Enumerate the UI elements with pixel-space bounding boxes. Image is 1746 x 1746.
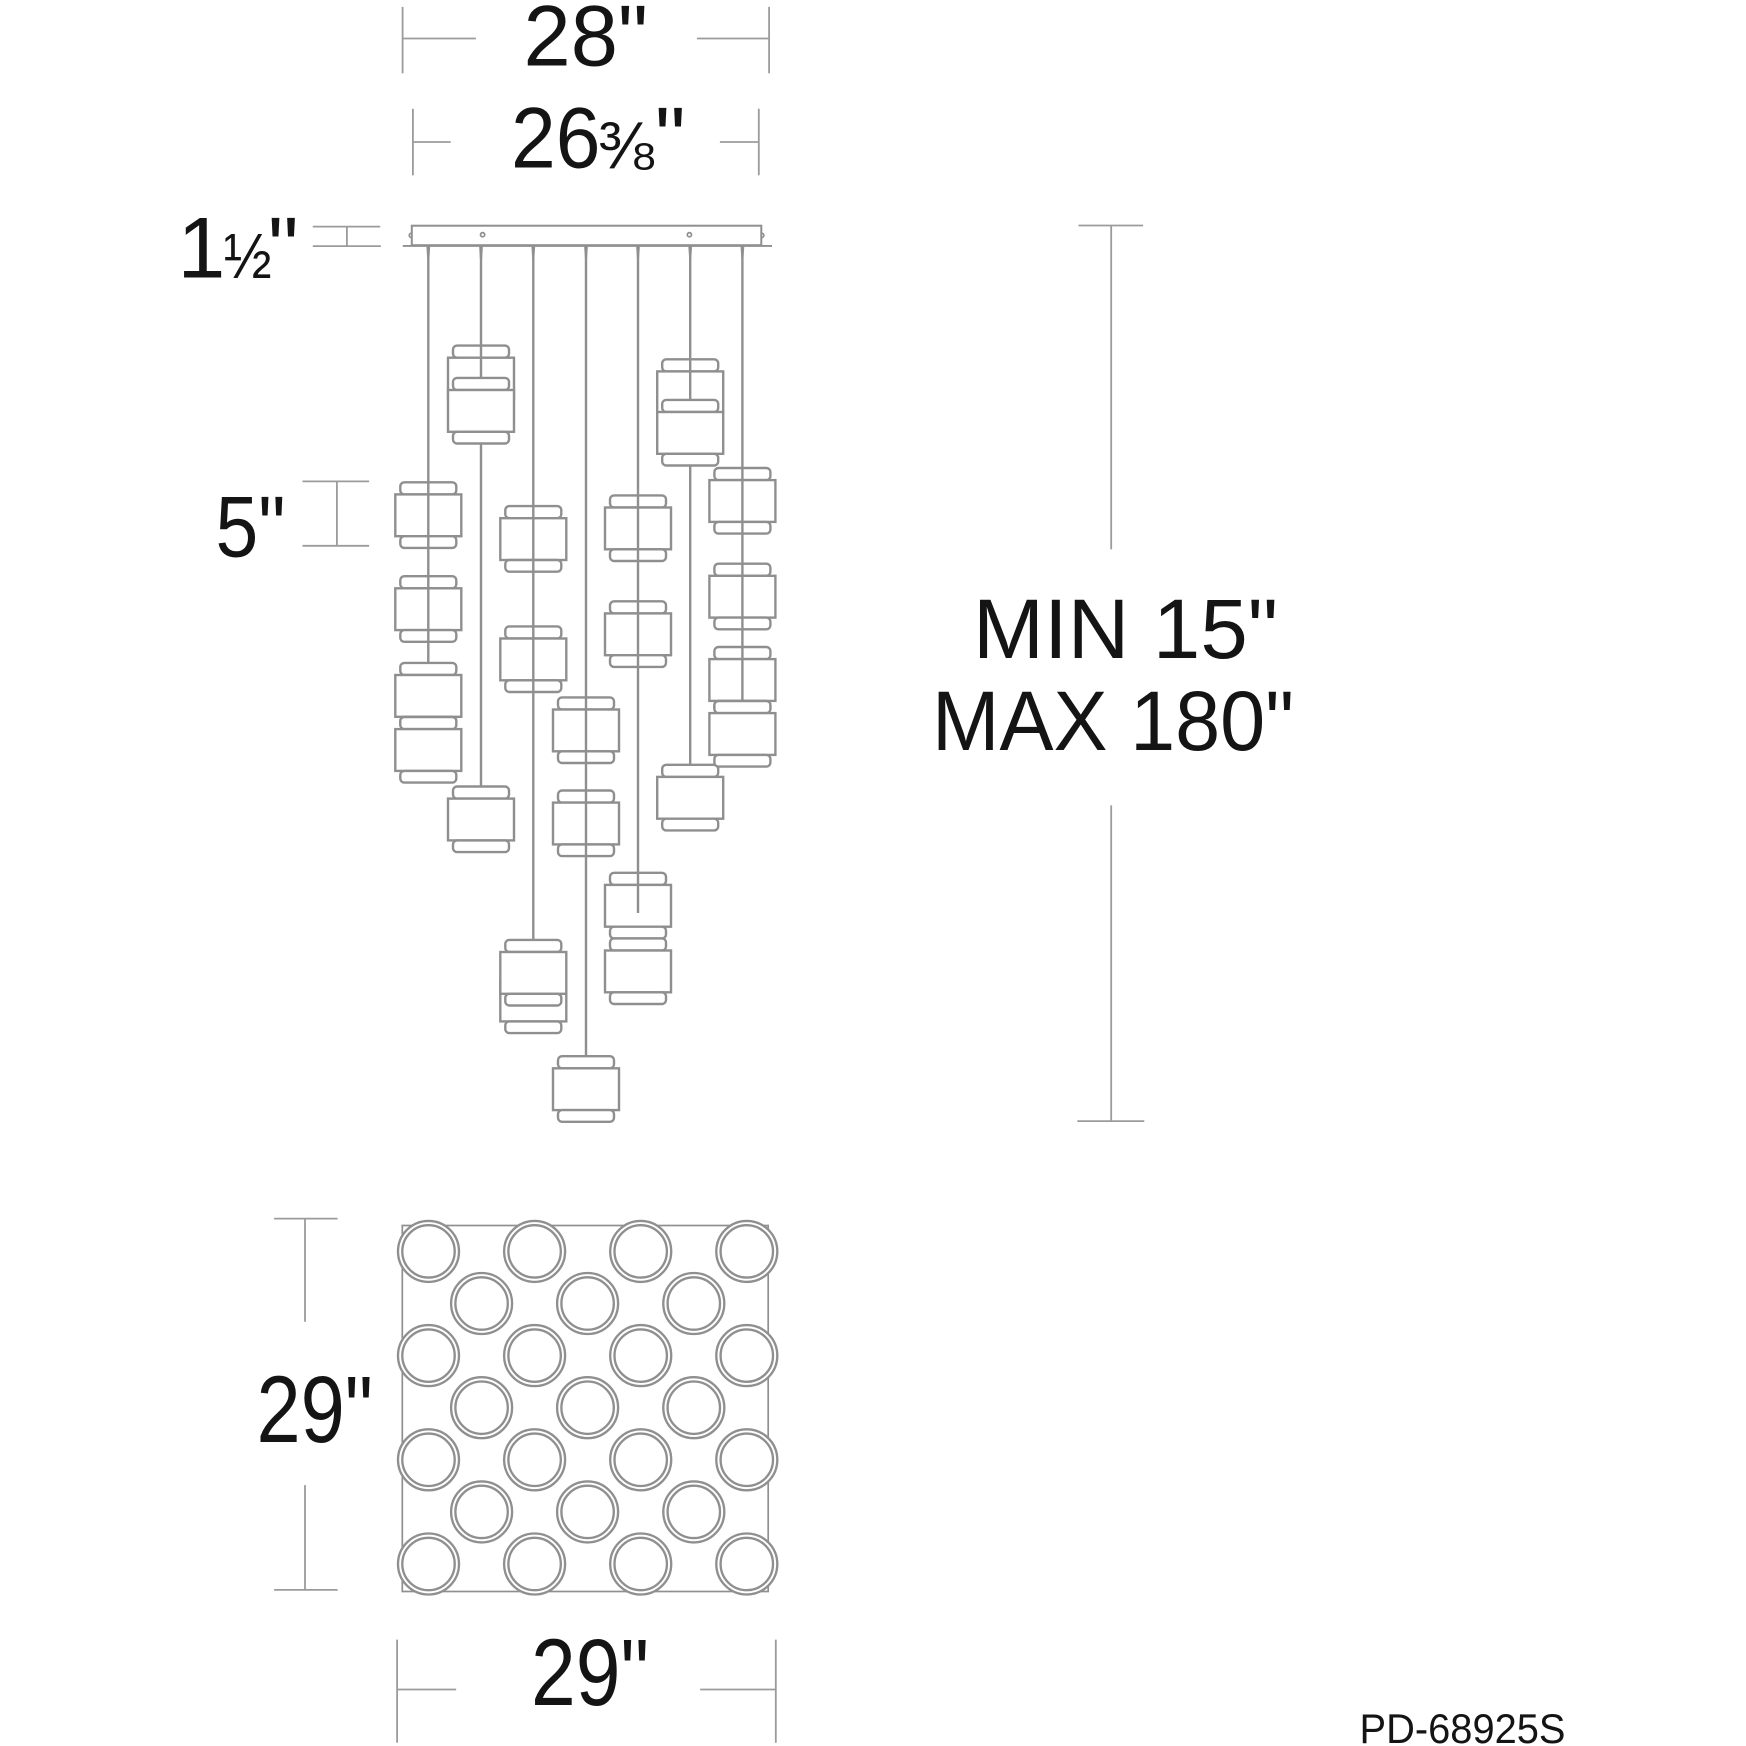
svg-text:½: ½ xyxy=(224,220,272,291)
svg-text:MAX 180": MAX 180" xyxy=(932,674,1294,768)
svg-text:MIN 15": MIN 15" xyxy=(973,582,1278,676)
svg-text:29": 29" xyxy=(531,1620,649,1726)
svg-text:26: 26 xyxy=(511,90,601,186)
svg-text:29": 29" xyxy=(257,1357,374,1463)
svg-text:⅜: ⅜ xyxy=(598,108,655,183)
svg-text:28": 28" xyxy=(524,0,649,84)
svg-text:5": 5" xyxy=(216,480,286,576)
svg-text:": " xyxy=(655,90,686,186)
svg-text:PD-68925S: PD-68925S xyxy=(1360,1705,1566,1746)
svg-text:1: 1 xyxy=(178,200,226,296)
svg-text:": " xyxy=(268,200,299,296)
